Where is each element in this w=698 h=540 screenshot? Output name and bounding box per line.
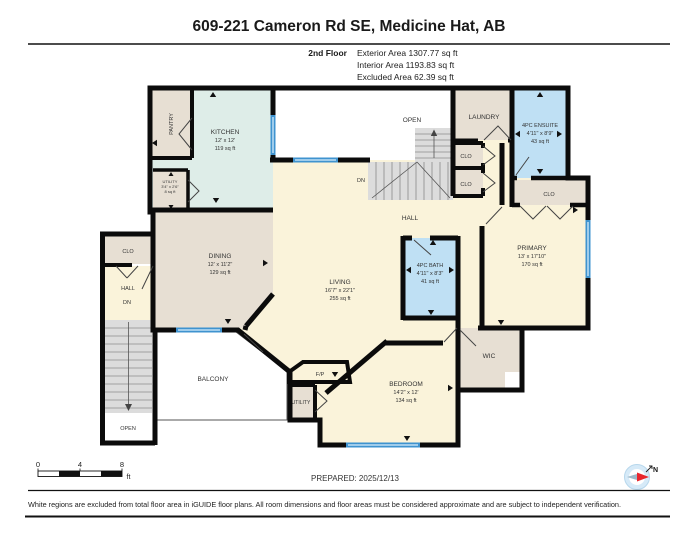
- bedroom-dims: 14'2" x 12': [393, 390, 418, 396]
- closet-primary-label: CLO: [543, 192, 555, 198]
- window-kitchen-inner: [272, 117, 274, 153]
- open-lower-label: OPEN: [120, 426, 136, 432]
- living-label: LIVING: [329, 279, 350, 286]
- page-title: 609-221 Cameron Rd SE, Medicine Hat, AB: [193, 18, 506, 35]
- window-primary-inner: [587, 222, 589, 276]
- stair-hall-label: HALL: [121, 286, 135, 292]
- fireplace-label: F/P: [316, 372, 325, 378]
- scale-tick-8: 8: [120, 460, 124, 469]
- footer-disclaimer: White regions are excluded from total fl…: [28, 500, 621, 509]
- primary-dims: 13' x 17'10": [518, 254, 546, 260]
- primary-sqft: 170 sq ft: [521, 262, 543, 268]
- bath-label: 4PC BATH: [417, 263, 444, 269]
- dn-main-label: DN: [357, 178, 365, 184]
- dining-sqft: 129 sq ft: [209, 270, 231, 276]
- bath-dims: 4'11" x 8'3": [417, 271, 444, 277]
- stat-exterior-area: Exterior Area 1307.77 sq ft: [357, 48, 458, 58]
- bath-sqft: 41 sq ft: [421, 279, 440, 285]
- scale-unit: ft: [127, 474, 131, 481]
- laundry-label: LAUNDRY: [469, 114, 501, 121]
- utility-lower-label: UTILITY: [292, 400, 311, 406]
- living-sqft: 255 sq ft: [329, 296, 351, 302]
- floor-label: 2nd Floor: [308, 48, 347, 58]
- bath-area: [403, 238, 458, 318]
- north-label: N: [653, 467, 658, 474]
- utility-upper-sqft: 8 sq ft: [165, 189, 177, 194]
- stair-dn-label: DN: [123, 300, 131, 306]
- ensuite-label: 4PC ENSUITE: [522, 123, 558, 129]
- primary-label: PRIMARY: [517, 245, 547, 252]
- kitchen-label: KITCHEN: [211, 129, 240, 136]
- scale-bar: 0 4 8 ft: [36, 460, 131, 481]
- floor-plan-canvas: 609-221 Cameron Rd SE, Medicine Hat, AB …: [0, 0, 698, 540]
- kitchen-sqft: 119 sq ft: [215, 146, 236, 152]
- window-living-top-inner: [295, 159, 336, 161]
- balcony-label: BALCONY: [197, 376, 229, 383]
- dining-label: DINING: [209, 253, 232, 260]
- scale-tick-0: 0: [36, 460, 40, 469]
- stat-excluded-area: Excluded Area 62.39 sq ft: [357, 72, 455, 82]
- living-dims: 16'7" x 22'1": [325, 288, 355, 294]
- kitchen-dims: 12' x 12': [215, 138, 235, 144]
- stat-interior-area: Interior Area 1193.83 sq ft: [357, 60, 455, 70]
- scale-tick-4: 4: [78, 460, 82, 469]
- wic-label: WIC: [483, 353, 496, 360]
- ensuite-sqft: 43 sq ft: [531, 139, 550, 145]
- closet-hall-a-label: CLO: [460, 154, 472, 160]
- pantry-label: PANTRY: [169, 113, 175, 135]
- closet-hall-b-label: CLO: [460, 182, 472, 188]
- bedroom-sqft: 134 sq ft: [395, 398, 417, 404]
- bedroom-label: BEDROOM: [389, 381, 423, 388]
- wic-notch: [505, 372, 522, 390]
- open-upper-label: OPEN: [403, 117, 422, 124]
- window-bedroom-inner: [348, 444, 418, 446]
- compass-icon: N: [625, 465, 659, 490]
- dining-dims: 12' x 11'2": [208, 262, 233, 268]
- stair-hall-area: [105, 266, 152, 320]
- window-dining-inner: [178, 329, 220, 331]
- stair-closet-label: CLO: [122, 249, 134, 255]
- ensuite-dims: 4'11" x 8'9": [527, 131, 554, 137]
- hall-main-label: HALL: [402, 215, 419, 222]
- prepared-date: PREPARED: 2025/12/13: [311, 474, 399, 483]
